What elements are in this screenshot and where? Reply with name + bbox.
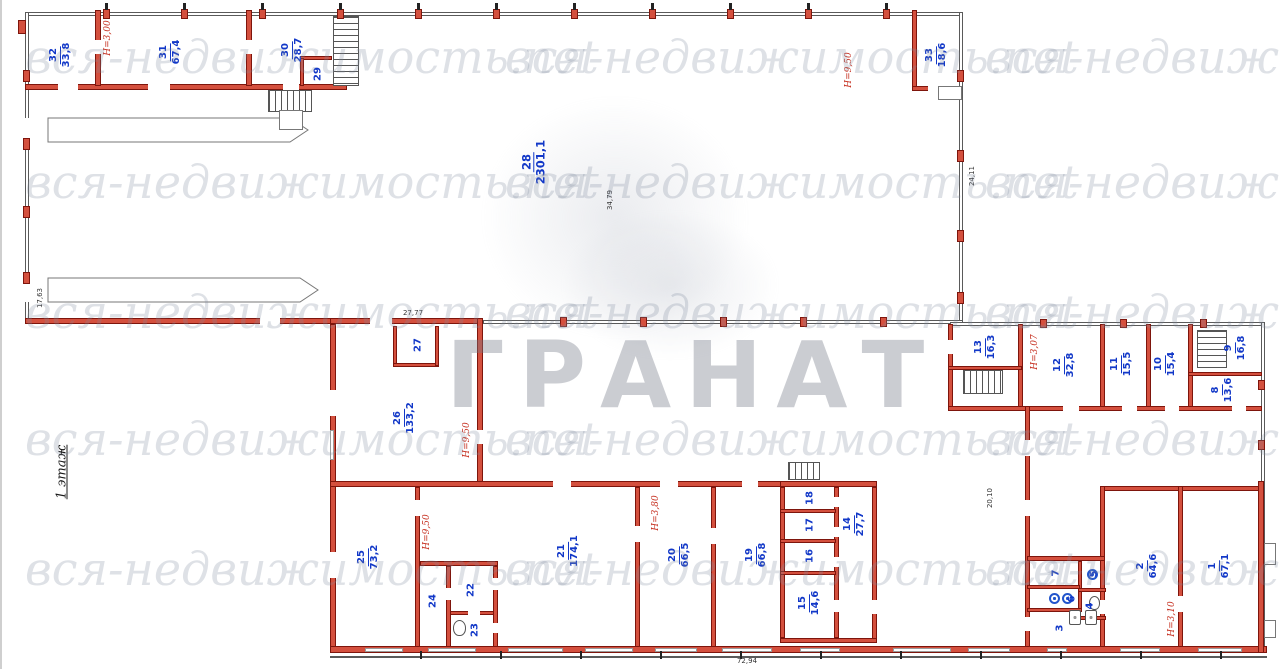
room-area: 28,7 bbox=[293, 38, 305, 63]
room-label-23: 23 bbox=[469, 621, 481, 639]
window bbox=[428, 648, 476, 652]
column-pilaster bbox=[720, 317, 727, 327]
door-opening bbox=[553, 481, 571, 487]
door-opening bbox=[1232, 406, 1246, 411]
porch-box bbox=[1264, 543, 1276, 565]
room-number: 6 bbox=[1066, 594, 1078, 605]
room-area: 66,8 bbox=[757, 543, 769, 568]
axis-tick bbox=[573, 3, 576, 10]
column-pilaster bbox=[337, 9, 344, 19]
room-area: 27,7 bbox=[855, 512, 867, 537]
room-label-13: 1316,3 bbox=[973, 335, 997, 360]
room-label-15: 1514,6 bbox=[797, 591, 821, 616]
window bbox=[585, 648, 633, 652]
room-number: 30 bbox=[280, 41, 293, 59]
window bbox=[365, 648, 403, 652]
dimension-label: 24,11 bbox=[968, 166, 976, 186]
dock-arrow bbox=[48, 118, 308, 142]
column-pilaster bbox=[23, 206, 30, 218]
room-area: 18,6 bbox=[937, 43, 949, 68]
room-area: 16,3 bbox=[986, 335, 998, 360]
axis-tick bbox=[580, 651, 582, 659]
room-label-6: 6 bbox=[1066, 594, 1078, 605]
column-pilaster bbox=[1200, 319, 1207, 328]
column-pilaster bbox=[560, 317, 567, 327]
room-number: 9 bbox=[1223, 343, 1236, 354]
room-label-18: 18 bbox=[804, 489, 816, 507]
axis-tick bbox=[420, 651, 422, 659]
window bbox=[330, 430, 334, 460]
room-label-31: 3167,4 bbox=[158, 40, 182, 65]
door-opening bbox=[95, 40, 101, 54]
room-area: 32,8 bbox=[1065, 353, 1077, 378]
room-label-2: 264,6 bbox=[1135, 554, 1159, 579]
room-label-25: 2573,2 bbox=[356, 545, 380, 570]
toilet-icon bbox=[1049, 593, 1060, 604]
axis-tick bbox=[651, 3, 654, 10]
room-label-28: 282301,1 bbox=[520, 140, 547, 184]
room-area: 133,2 bbox=[405, 402, 417, 434]
column-pilaster bbox=[957, 292, 964, 304]
room-number: 8 bbox=[1210, 385, 1223, 396]
column-pilaster bbox=[181, 9, 188, 19]
room-area: 15,5 bbox=[1122, 352, 1134, 377]
axis-tick bbox=[820, 651, 822, 659]
room-area: 15,4 bbox=[1166, 352, 1178, 377]
door-opening bbox=[246, 40, 252, 54]
room-number: 12 bbox=[1052, 356, 1065, 374]
height-label: Н=9,50 bbox=[844, 52, 854, 87]
room-area: 73,2 bbox=[369, 545, 381, 570]
door-opening bbox=[493, 623, 498, 633]
room-label-24: 24 bbox=[427, 592, 439, 610]
room-label-8: 813,6 bbox=[1210, 378, 1234, 403]
window bbox=[1047, 648, 1067, 652]
room-number: 4 bbox=[1084, 601, 1096, 612]
sink-icon bbox=[1085, 610, 1097, 625]
room-label-32: 3233,8 bbox=[48, 43, 72, 68]
door-opening bbox=[477, 430, 483, 444]
room-label-10: 1015,4 bbox=[1153, 352, 1177, 377]
window bbox=[508, 648, 563, 652]
floor-label: 1 этаж bbox=[55, 445, 70, 500]
room-number: 18 bbox=[804, 489, 816, 507]
dimension-label: 17,63 bbox=[36, 288, 44, 308]
room-area: 67,1 bbox=[1220, 554, 1232, 579]
height-label: Н=3,80 bbox=[651, 495, 661, 530]
sink-icon bbox=[1069, 610, 1081, 625]
toilet-icon bbox=[453, 620, 466, 636]
room-label-27: 27 bbox=[412, 336, 424, 354]
room-number: 25 bbox=[356, 548, 369, 566]
door-opening bbox=[330, 552, 336, 578]
axis-tick bbox=[1140, 651, 1142, 659]
column-pilaster bbox=[1258, 380, 1265, 390]
porch-box bbox=[279, 110, 303, 130]
axis-tick bbox=[417, 3, 420, 10]
room-area: 64,6 bbox=[1148, 554, 1160, 579]
height-label: Н=3,07 bbox=[1030, 334, 1040, 369]
dock-arrow bbox=[48, 278, 318, 302]
height-label: Н=9,50 bbox=[462, 422, 472, 457]
room-number: 32 bbox=[48, 46, 61, 64]
door-opening bbox=[635, 526, 640, 542]
axis-tick bbox=[660, 651, 662, 659]
room-label-26: 26133,2 bbox=[392, 402, 416, 434]
door-opening bbox=[58, 84, 78, 90]
axis-tick bbox=[105, 3, 108, 10]
door-opening bbox=[834, 600, 839, 612]
dimension-label: 27,77 bbox=[403, 309, 423, 317]
axis-tick bbox=[1060, 651, 1062, 659]
room-number: 26 bbox=[392, 409, 405, 427]
door-opening bbox=[260, 318, 280, 324]
porch-box bbox=[1264, 620, 1276, 638]
door-opening bbox=[834, 557, 839, 567]
room-area: 174,1 bbox=[569, 535, 581, 567]
room-label-12: 1232,8 bbox=[1052, 353, 1076, 378]
room-number: 5 bbox=[1088, 569, 1100, 580]
room-number: 1 bbox=[1207, 561, 1220, 572]
room-area: 2301,1 bbox=[535, 140, 548, 184]
column-pilaster bbox=[800, 317, 807, 327]
room-label-20: 2066,5 bbox=[667, 543, 691, 568]
room-label-22: 22 bbox=[465, 581, 477, 599]
room-area: 16,8 bbox=[1236, 336, 1248, 361]
height-label: Н=3,10 bbox=[1167, 601, 1177, 636]
door-opening bbox=[148, 84, 170, 90]
axis-tick bbox=[261, 3, 264, 10]
axis-tick bbox=[807, 3, 810, 10]
stairs bbox=[788, 462, 820, 480]
stairs bbox=[333, 16, 359, 86]
porch-box bbox=[938, 86, 962, 100]
room-label-14: 1427,7 bbox=[842, 512, 866, 537]
room-area: 67,4 bbox=[171, 40, 183, 65]
room-number: 23 bbox=[469, 621, 481, 639]
column-pilaster bbox=[415, 9, 422, 19]
room-number: 16 bbox=[804, 547, 816, 565]
room-number: 3 bbox=[1054, 623, 1066, 634]
room-label-4: 4 bbox=[1084, 601, 1096, 612]
axis-tick bbox=[900, 651, 902, 659]
door-opening bbox=[468, 611, 480, 615]
door-opening bbox=[872, 600, 877, 614]
dimension-label: 34,79 bbox=[606, 190, 614, 210]
axis-tick bbox=[1220, 651, 1222, 659]
column-pilaster bbox=[23, 272, 30, 284]
room-number: 33 bbox=[924, 46, 937, 64]
room-number: 13 bbox=[973, 338, 986, 356]
room-label-7: 7 bbox=[1050, 568, 1062, 579]
dimension-label: 20,10 bbox=[986, 488, 994, 508]
window bbox=[968, 648, 1010, 652]
room-number: 22 bbox=[465, 581, 477, 599]
room-area: 13,6 bbox=[1223, 378, 1235, 403]
door-opening bbox=[1025, 617, 1030, 631]
window bbox=[722, 648, 772, 652]
room-number: 2 bbox=[1135, 561, 1148, 572]
axis-tick bbox=[980, 651, 982, 659]
room-label-16: 16 bbox=[804, 547, 816, 565]
room-number: 11 bbox=[1109, 355, 1122, 373]
door-opening bbox=[446, 588, 451, 600]
door-opening bbox=[711, 528, 716, 544]
column-pilaster bbox=[957, 150, 964, 162]
door-opening bbox=[948, 340, 953, 354]
column-pilaster bbox=[957, 230, 964, 242]
column-pilaster bbox=[805, 9, 812, 19]
room-number: 28 bbox=[520, 152, 534, 172]
room-number: 31 bbox=[158, 43, 171, 61]
column-pilaster bbox=[571, 9, 578, 19]
door-opening bbox=[834, 497, 839, 507]
door-opening bbox=[1025, 500, 1030, 516]
door-opening bbox=[370, 318, 392, 324]
column-pilaster bbox=[259, 9, 266, 19]
column-pilaster bbox=[880, 317, 887, 327]
column-pilaster bbox=[640, 317, 647, 327]
column-pilaster bbox=[1258, 440, 1265, 450]
column-pilaster bbox=[23, 138, 30, 150]
door-opening bbox=[330, 390, 336, 416]
door-opening bbox=[493, 578, 498, 590]
room-label-17: 17 bbox=[804, 516, 816, 534]
dimension-label: 72,94 bbox=[737, 657, 757, 665]
door-opening bbox=[1122, 406, 1137, 411]
door-opening bbox=[1165, 406, 1179, 411]
column-pilaster bbox=[1040, 319, 1047, 328]
room-number: 10 bbox=[1153, 355, 1166, 373]
column-pilaster bbox=[957, 70, 964, 82]
axis-tick bbox=[339, 3, 342, 10]
axis-tick bbox=[500, 651, 502, 659]
room-number: 29 bbox=[312, 65, 324, 83]
axis-tick bbox=[495, 3, 498, 10]
door-opening bbox=[1025, 440, 1030, 456]
column-pilaster bbox=[23, 70, 30, 82]
stairs bbox=[963, 370, 1003, 394]
door-opening bbox=[1100, 600, 1105, 614]
room-area: 33,8 bbox=[61, 43, 73, 68]
room-number: 14 bbox=[842, 515, 855, 533]
column-pilaster bbox=[493, 9, 500, 19]
door-opening bbox=[1063, 406, 1079, 411]
column-pilaster bbox=[727, 9, 734, 19]
room-label-3: 3 bbox=[1054, 623, 1066, 634]
column-pilaster bbox=[649, 9, 656, 19]
room-number: 21 bbox=[556, 542, 569, 560]
room-label-30: 3028,7 bbox=[280, 38, 304, 63]
door-opening bbox=[742, 481, 758, 487]
door-opening bbox=[660, 481, 678, 487]
height-label: Н=3,00 bbox=[103, 20, 113, 55]
room-number: 27 bbox=[412, 336, 424, 354]
height-label: Н=9,50 bbox=[422, 514, 432, 549]
door-opening bbox=[1178, 596, 1183, 612]
room-number: 24 bbox=[427, 592, 439, 610]
room-number: 7 bbox=[1050, 568, 1062, 579]
room-area: 14,6 bbox=[810, 591, 822, 616]
room-label-11: 1115,5 bbox=[1109, 352, 1133, 377]
door-opening bbox=[415, 500, 420, 516]
room-number: 17 bbox=[804, 516, 816, 534]
room-number: 15 bbox=[797, 594, 810, 612]
room-label-33: 3318,6 bbox=[924, 43, 948, 68]
floor-plan-scan: вся-недвижимость.net вся-недвижимость.ne… bbox=[0, 0, 1280, 669]
room-label-5: 5 bbox=[1088, 569, 1100, 580]
room-area: 66,5 bbox=[680, 543, 692, 568]
room-number: 19 bbox=[744, 546, 757, 564]
room-label-19: 1966,8 bbox=[744, 543, 768, 568]
column-pilaster bbox=[1120, 319, 1127, 328]
room-label-29: 29 bbox=[312, 65, 324, 83]
room-label-21: 21174,1 bbox=[556, 535, 580, 567]
axis-tick bbox=[183, 3, 186, 10]
column-pilaster bbox=[103, 9, 110, 19]
stairs bbox=[268, 90, 312, 112]
room-label-1: 167,1 bbox=[1207, 554, 1231, 579]
room-label-9: 916,8 bbox=[1223, 336, 1247, 361]
axis-tick bbox=[729, 3, 732, 10]
door-opening bbox=[834, 527, 839, 537]
column-pilaster bbox=[883, 9, 890, 19]
room-number: 20 bbox=[667, 546, 680, 564]
door-opening bbox=[283, 84, 299, 90]
axis-tick bbox=[885, 3, 888, 10]
